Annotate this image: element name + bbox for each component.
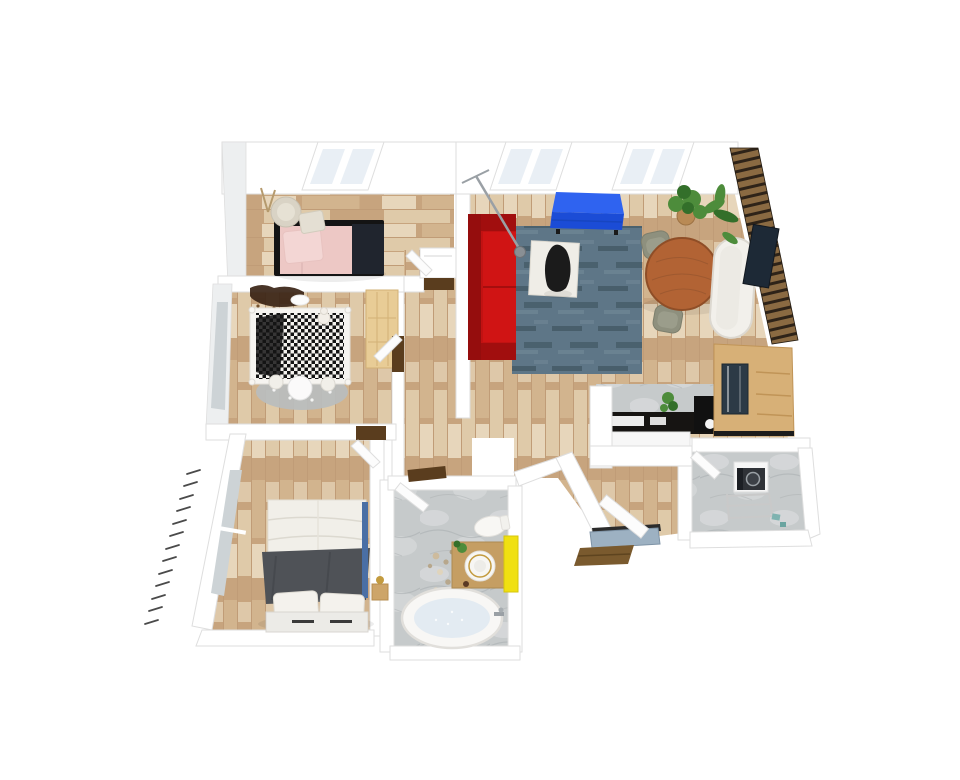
utility-bottom-wall [690,530,812,548]
bench-handle-right [330,620,352,623]
cabinet-kick-shadow [714,431,794,436]
floor-plan-canvas [0,0,960,780]
hallway-living-opening-floor [454,416,472,480]
utility-top-wall [678,438,810,452]
bench-handle-left [292,620,314,623]
living-hallway-wall [456,194,470,418]
kitchen-peninsula-wall-h [590,446,692,466]
vanity-accessory [463,581,469,587]
lounge-chair-shadow [544,290,572,298]
crib-dark-blanket [256,313,284,379]
washer-door [747,473,760,486]
stool-right [321,377,335,391]
tall-wood-cabinet [714,344,794,436]
gold-table-lamp [376,576,384,584]
master-door-threshold [356,426,386,440]
kids-table [288,376,312,400]
tub-faucet [494,612,504,616]
laundry-item-b [780,522,786,527]
washer-panel [737,468,743,490]
sink-drain [474,560,486,572]
bathtub-water [414,598,490,638]
red-sofa [468,214,516,360]
storage-bench [266,612,368,632]
bath-plant-dark [454,541,461,548]
ceiling-light [291,295,309,305]
yellow-cabinet [504,536,518,592]
blue-runner [362,502,368,598]
glass-fridge [722,364,748,414]
teddy-bear-head [321,308,328,315]
doormat [590,528,660,548]
armchair-seat [277,203,295,221]
stool-left [269,375,283,389]
bathroom-left-wall [380,480,394,652]
nightstand [372,584,388,600]
ottoman [298,210,325,234]
navy-throw [352,224,384,274]
bedroom-door-threshold [424,278,454,290]
counter-item-small [650,417,666,425]
round-dining-table [646,238,718,310]
tub-faucet-head [499,608,504,613]
